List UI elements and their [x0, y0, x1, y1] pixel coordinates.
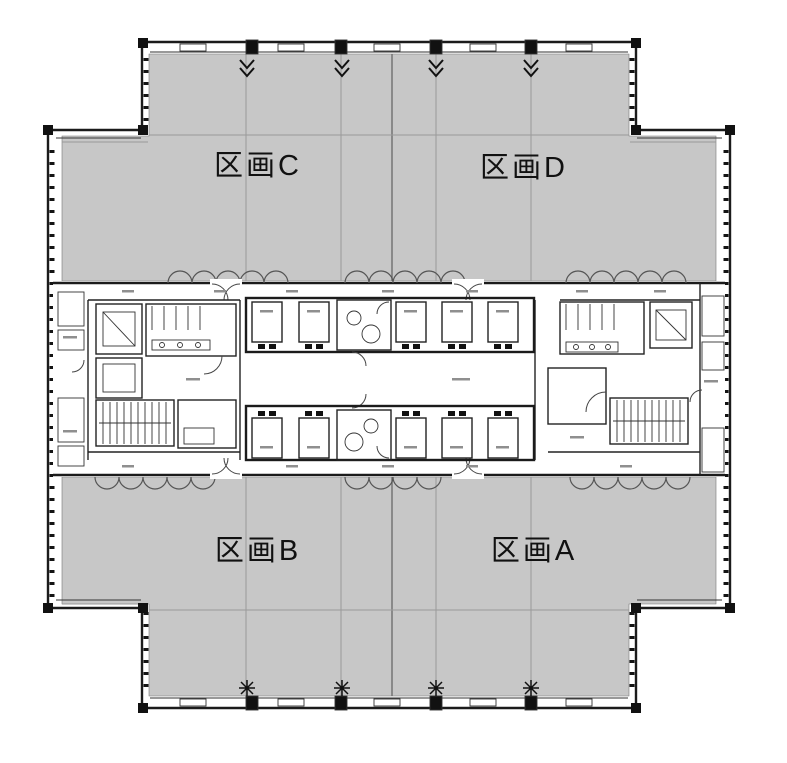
section-label-c: 区画C — [214, 150, 302, 182]
south-tenant-slab — [62, 477, 716, 696]
north-tenant-slab — [62, 54, 716, 281]
section-label-b: 区画B — [215, 535, 301, 567]
floor-plan-drawing: 区画C 区画D 区画B 区画A — [0, 0, 787, 763]
core-floor — [53, 281, 725, 477]
section-label-a: 区画A — [491, 535, 577, 567]
section-label-d: 区画D — [480, 152, 568, 184]
floor-plan: 区画C 区画D 区画B 区画A — [0, 0, 787, 763]
core-band — [53, 271, 725, 489]
